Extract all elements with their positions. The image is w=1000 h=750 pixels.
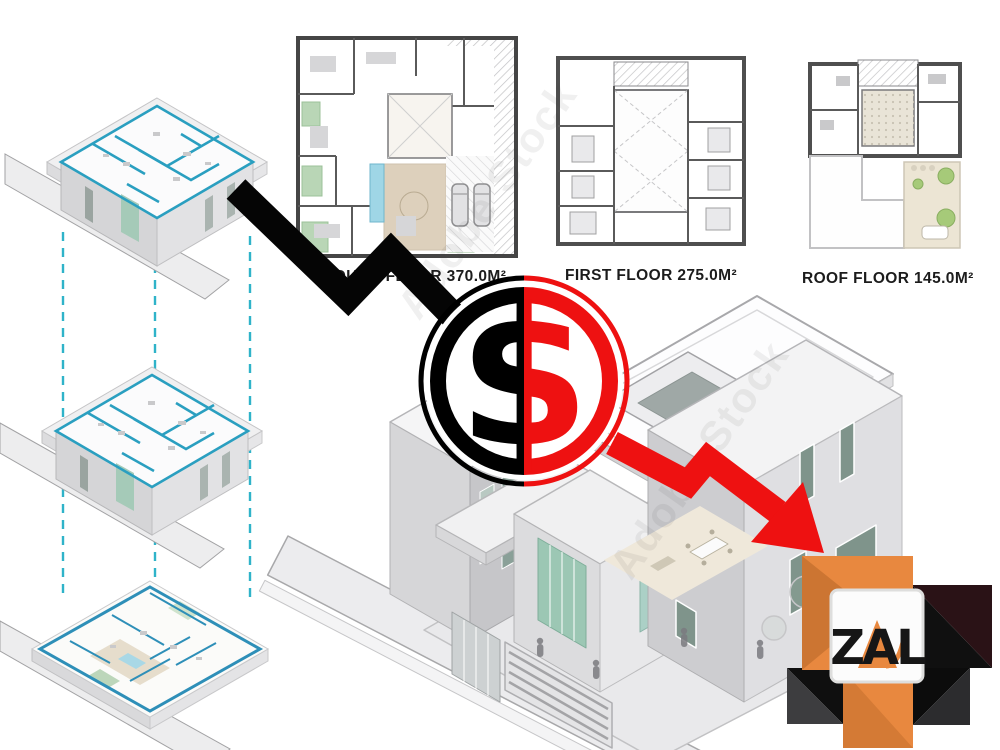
- pool: [370, 164, 384, 222]
- exploded-axon-second-floor: [0, 367, 262, 568]
- architecture-cost-collage: Adobe Stock Adobe Stock GROUND FLOOR 370…: [0, 0, 1000, 750]
- first-floor-label: FIRST FLOOR 275.0M²: [556, 267, 746, 285]
- first-floor-plan: [556, 56, 746, 246]
- villa-3d-render: [259, 296, 902, 750]
- roof-floor-plan: [806, 50, 964, 255]
- exploded-axon-ground-floor: [0, 581, 268, 750]
- base-graphics: [0, 0, 1000, 750]
- ground-floor-plan: [296, 36, 518, 258]
- ground-floor-label: GROUND FLOOR 370.0M²: [296, 268, 520, 286]
- exploded-axon-first-floor: [5, 98, 267, 299]
- roof-floor-label: ROOF FLOOR 145.0M²: [802, 270, 964, 288]
